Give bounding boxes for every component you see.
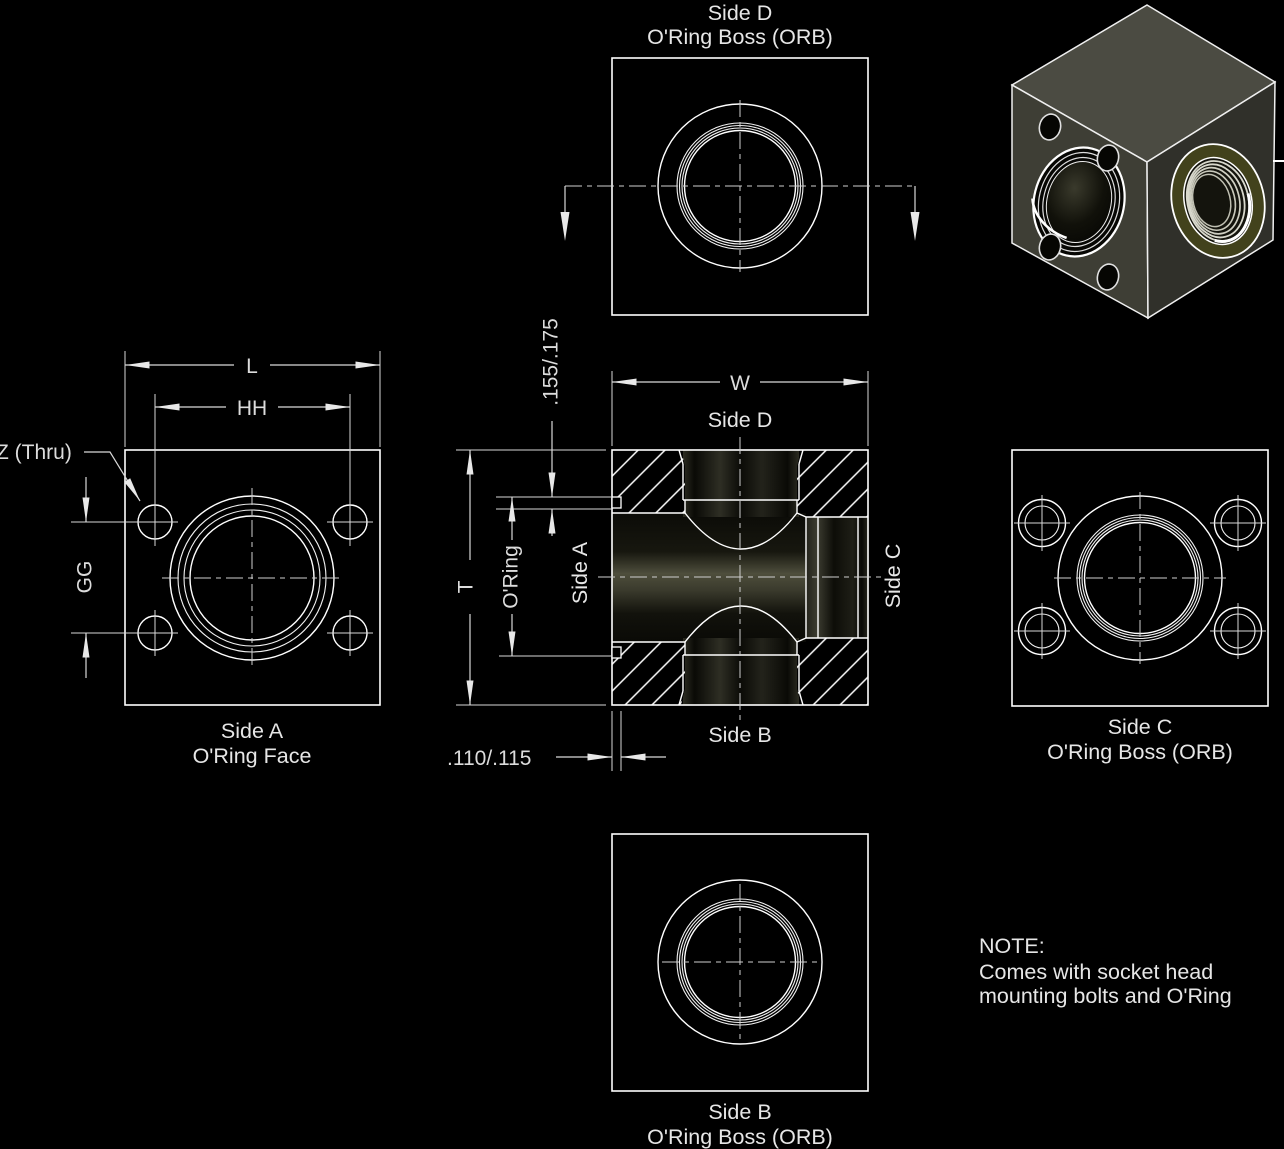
dim-l-label: L bbox=[246, 355, 258, 378]
note-line1: Comes with socket head bbox=[979, 960, 1213, 984]
section-side-d-label: Side D bbox=[708, 408, 773, 432]
z-thru-label: Z (Thru) bbox=[0, 441, 72, 464]
dim-face-label: .110/.115 bbox=[447, 747, 531, 770]
oring-groove-top bbox=[612, 497, 621, 508]
section-port-bottom bbox=[683, 638, 799, 705]
dim-w-label: W bbox=[730, 372, 750, 395]
dim-groove-label: .155/.175 bbox=[540, 318, 563, 406]
section-side-b-label: Side B bbox=[708, 723, 771, 747]
section-side-c-label: Side C bbox=[881, 544, 905, 609]
drawing-page: Side D O'Ring Boss (ORB) bbox=[0, 0, 1284, 1149]
side-a-caption: Side A bbox=[221, 719, 284, 743]
dim-gg-label: GG bbox=[74, 561, 97, 594]
drawing-canvas: Side D O'Ring Boss (ORB) bbox=[0, 0, 1284, 1149]
dim-t-label: T bbox=[455, 580, 478, 593]
side-b-caption: Side B bbox=[708, 1100, 771, 1124]
side-c-subcaption: O'Ring Boss (ORB) bbox=[1047, 740, 1233, 764]
side-d-top-subtitle: O'Ring Boss (ORB) bbox=[647, 25, 833, 49]
section-port-top bbox=[683, 450, 799, 517]
note-line2: mounting bolts and O'Ring bbox=[979, 984, 1232, 1008]
dim-oring-label: O'Ring bbox=[500, 545, 523, 609]
oring-groove-bottom bbox=[612, 647, 621, 658]
side-b-subcaption: O'Ring Boss (ORB) bbox=[647, 1125, 833, 1149]
side-a-subcaption: O'Ring Face bbox=[193, 744, 312, 768]
section-side-a-label: Side A bbox=[568, 541, 592, 604]
side-d-top-title: Side D bbox=[708, 1, 773, 25]
dim-hh-label: HH bbox=[237, 397, 267, 420]
note-heading: NOTE: bbox=[979, 934, 1045, 958]
side-c-caption: Side C bbox=[1108, 715, 1173, 739]
